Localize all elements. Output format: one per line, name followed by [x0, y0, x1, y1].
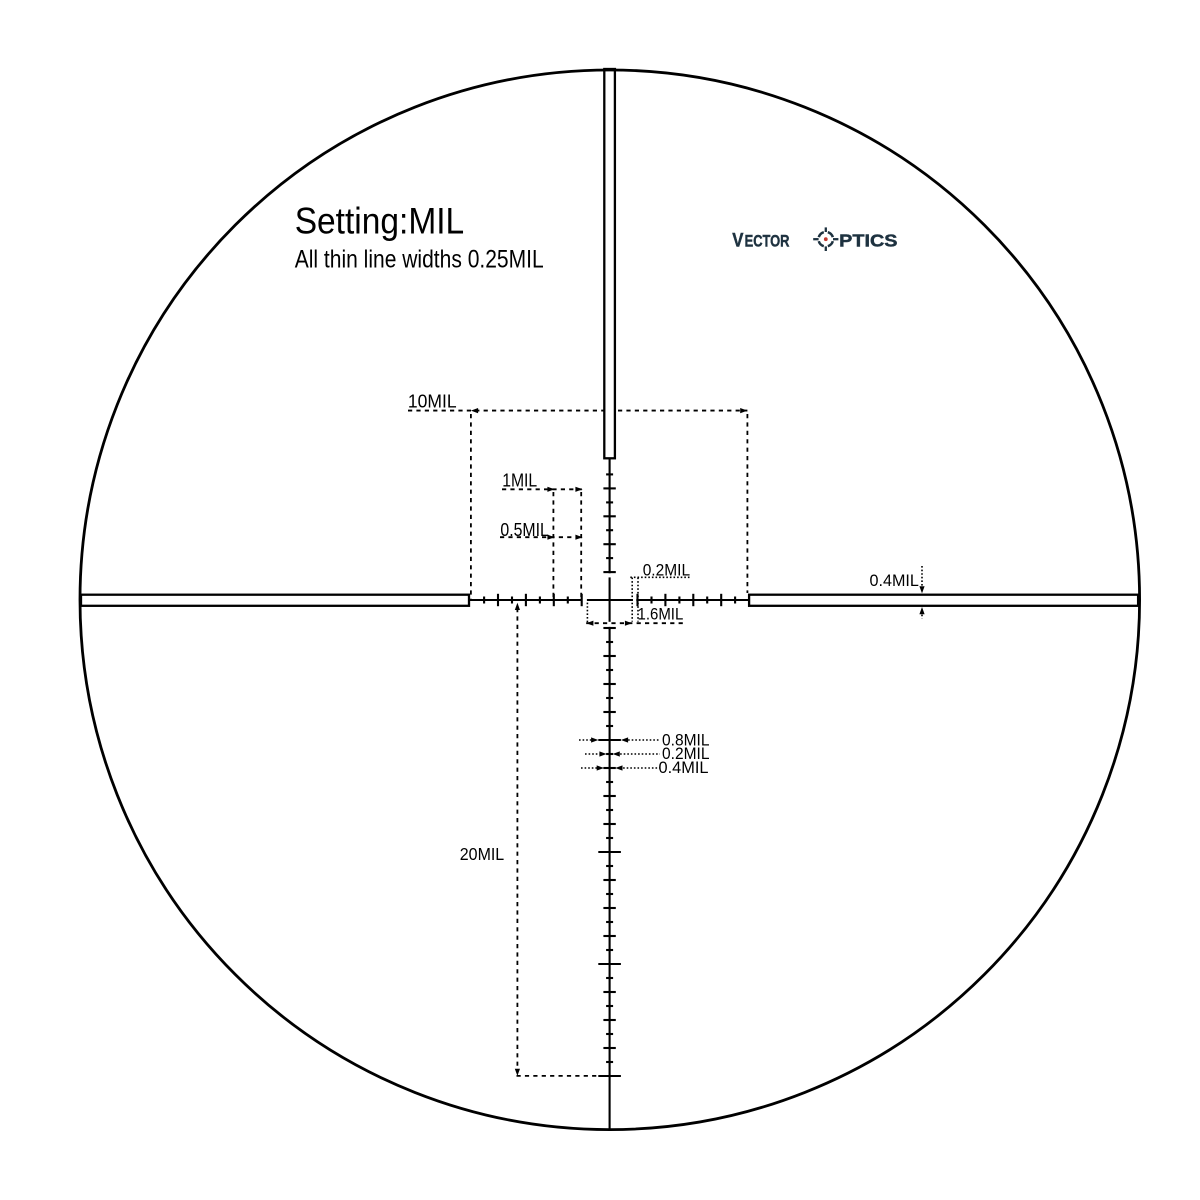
svg-text:20MIL: 20MIL: [460, 844, 505, 864]
svg-text:10MIL: 10MIL: [408, 392, 457, 412]
svg-text:1.6MIL: 1.6MIL: [638, 604, 684, 623]
svg-text:Setting:MIL: Setting:MIL: [295, 201, 465, 242]
svg-text:0.4MIL: 0.4MIL: [659, 758, 709, 777]
svg-text:V: V: [732, 229, 743, 251]
svg-text:All thin line widths 0.25MIL: All thin line widths 0.25MIL: [295, 245, 544, 273]
svg-text:0.2MIL: 0.2MIL: [643, 560, 690, 579]
svg-text:ECTOR: ECTOR: [745, 231, 790, 250]
svg-text:0.5MIL: 0.5MIL: [500, 520, 548, 540]
svg-text:0.4MIL: 0.4MIL: [870, 571, 919, 590]
svg-text:PTICS: PTICS: [839, 230, 897, 250]
svg-text:1MIL: 1MIL: [502, 470, 537, 490]
